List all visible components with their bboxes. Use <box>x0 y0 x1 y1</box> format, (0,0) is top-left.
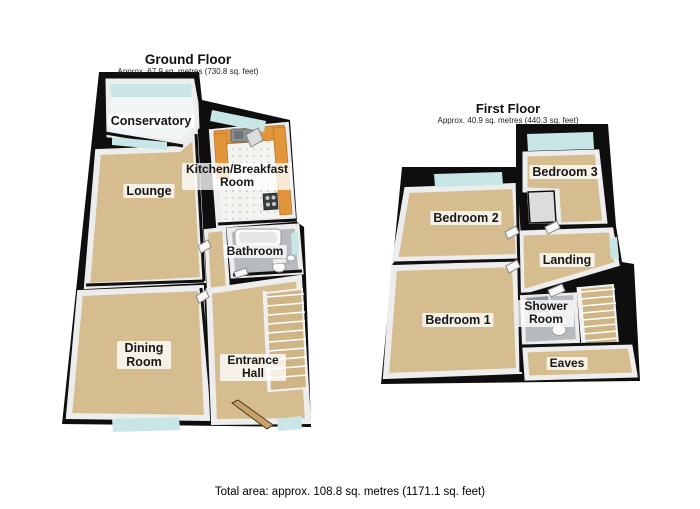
hall-corridor-floor <box>206 229 228 291</box>
room-label-lounge: Lounge <box>123 184 174 198</box>
room-label-kitchen: Kitchen/Breakfast Room <box>182 163 292 190</box>
room-label-bedroom2: Bedroom 2 <box>430 211 501 225</box>
first-floor-title: First Floor <box>476 101 540 116</box>
bedroom3-window-glass <box>527 132 594 151</box>
bedroom3-landing-wall <box>522 225 614 227</box>
bedroom2-window-glass <box>434 172 503 187</box>
total-area-text: Total area: approx. 108.8 sq. metres (11… <box>215 486 485 498</box>
room-label-dining: Dining Room <box>117 341 171 369</box>
room-label-bathroom: Bathroom <box>224 245 287 258</box>
floorplan-drawing <box>0 0 700 509</box>
lounge-floor <box>87 135 203 286</box>
room-label-shower: Shower Room <box>518 300 574 327</box>
bathroom-basin <box>287 255 295 261</box>
bathroom-toilet-cistern <box>272 258 287 264</box>
room-label-conservatory: Conservatory <box>108 114 195 128</box>
room-label-entrance: Entrance Hall <box>220 354 286 381</box>
first-floor-plan <box>381 124 640 384</box>
room-label-eaves: Eaves <box>547 357 588 370</box>
ground-floor-title: Ground Floor <box>145 52 231 67</box>
kitchen-hob <box>263 193 278 210</box>
first-staircase <box>578 285 618 347</box>
kitchen-sink-bowl <box>234 131 243 139</box>
room-label-bedroom1: Bedroom 1 <box>422 313 493 327</box>
bathroom-window-glass <box>291 232 299 255</box>
bathtub-inner <box>239 232 277 243</box>
ground-floor-subtitle: Approx. 67.9 sq. metres (730.8 sq. feet) <box>118 67 259 76</box>
floorplan-page: Ground Floor Approx. 67.9 sq. metres (73… <box>0 0 700 509</box>
bedroom3-closet <box>528 191 556 223</box>
room-label-landing: Landing <box>540 253 595 267</box>
conservatory-window-glass <box>110 84 192 97</box>
room-label-bedroom3: Bedroom 3 <box>529 165 600 179</box>
first-floor-subtitle: Approx. 40.9 sq. metres (440.3 sq. feet) <box>438 116 579 125</box>
patio-door-glass <box>112 417 180 432</box>
